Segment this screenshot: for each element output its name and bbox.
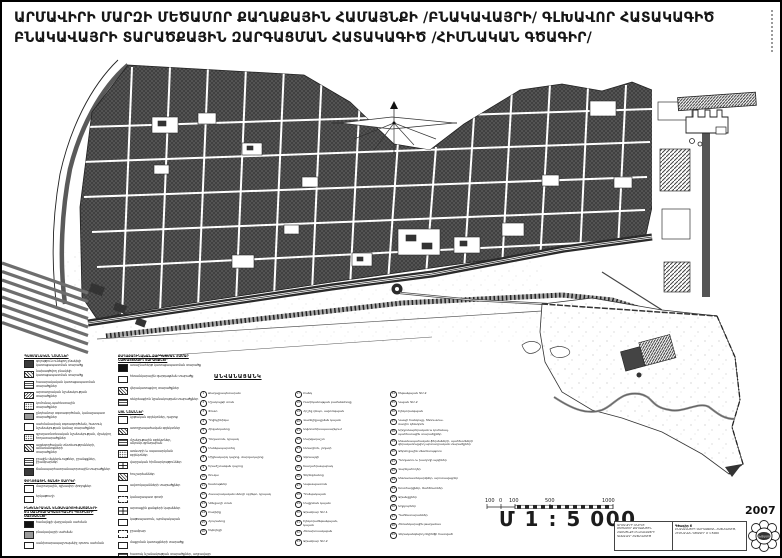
scale-label: 0 (499, 498, 502, 504)
legend-item-label: մշակութային օբյեկտներ, ակումբ-գրադարան (130, 439, 171, 447)
index-item-number: 7 (200, 446, 207, 453)
legend-item-label: հուշարձաններ (130, 473, 155, 477)
stamp-text: ՄԵԾԱՄՈՐ (757, 534, 771, 538)
sheet-title: ԱՐՄԱՎԻՐԻ ՄԱՐԶԻ ՄԵԾԱՄՈՐ ՔԱՂԱՔԱՅԻՆ ՀԱՄԱՅՆՔ… (14, 8, 759, 49)
legend-symbol (118, 496, 128, 504)
index-item-label: Բանկ (303, 392, 312, 396)
legend-symbol (118, 473, 128, 481)
index-item-number: 41 (390, 459, 397, 466)
index-item-label: Ջրամբար ԳՄ-2 (303, 540, 327, 544)
index-item-number: 42 (390, 468, 397, 475)
index-item-number: 44 (390, 486, 397, 493)
index-item-label: Վարելահողեր (398, 468, 420, 472)
index-item: 12Հասարակական սննդի օբյեկտ, կրպակ (200, 492, 293, 499)
legend-symbol (118, 439, 128, 447)
legend-item-label: սանիտարապաշտպանիչ գոտու սահման (36, 542, 104, 546)
index-item: 49Վերականգնվող ռելիեֆի հատված (390, 532, 483, 539)
index-item: 1Քաղաքապետարան (200, 391, 293, 398)
legend-symbol (24, 444, 34, 452)
plan-sheet: ԱՐՄԱՎԻՐԻ ՄԱՐԶԻ ՄԵԾԱՄՈՐ ՔԱՂԱՔԱՅԻՆ ՀԱՄԱՅՆՔ… (0, 0, 782, 558)
legend-item-label: կանաչապատ գոտի (130, 496, 163, 500)
index-item-label: Գերեզմանոց (303, 474, 323, 478)
index-item: 27Կաթսայատուն (295, 483, 388, 490)
index-item: 40Ջերմոցային տնտեսություն (390, 449, 483, 456)
legend-item-label: ավտոկայանների տարածքներ (130, 484, 180, 488)
index-item-number: 2 (200, 400, 207, 407)
index-item-label: Ջերմոցային տնտեսություն (398, 450, 441, 454)
index-item: 17Բանկ (295, 391, 388, 398)
index-item: 23Ստադիոն, լողափ (295, 446, 388, 453)
index-item-label: Եկեղեցի (208, 529, 222, 533)
legend-item-label: գոյություն ունեցող բնակելի կառուցապատման… (36, 360, 83, 368)
legend-section-header: ՔԱՂԱՔԱՇԻՆԱԿԱՆ ԶԱՐԳԱՑՄԱՆ ՀԱՄԱՐ ՆԱԽԱՏԵՍՎՈՂ… (118, 354, 211, 363)
index-item: 10Շուկա (200, 474, 293, 481)
legend-item-label: առևտրի և սպասարկման օբյեկտներ (130, 450, 173, 458)
well-point (637, 373, 642, 378)
legend-symbol (118, 542, 128, 550)
index-item-number: 19 (295, 409, 302, 416)
scale-label: 500 (545, 498, 555, 504)
legend-symbol (118, 485, 128, 493)
legend-item: բնակավայրի սահման (24, 531, 114, 539)
legend: ՊԱՅՄԱՆԱԿԱՆ ՆՇԱՆՆԵՐգոյություն ունեցող բնա… (24, 351, 474, 551)
legend-item: արտաքին ցանցերի կայաններ (118, 507, 211, 515)
index-item-label: Վառելիքալցման կայան (303, 419, 340, 423)
legend-section-header: ՊԱՅՄԱՆԱԿԱՆ ՆՇԱՆՆԵՐ (24, 354, 114, 358)
legend-item: կոմունալ-պահեստային տարածքներ (24, 402, 114, 410)
legend-symbol (24, 381, 34, 389)
index-item: 34Ենթակայան ԳՄ-2 (390, 391, 483, 398)
legend-item: կաթսայատուն, պոմպակայան (118, 518, 211, 526)
index-item-number: 40 (390, 449, 397, 456)
index-item-number: 11 (200, 483, 207, 490)
index-item-label: Մշակույթի տուն (208, 401, 234, 405)
legend-symbol (24, 423, 34, 431)
legend-item-label: նախագծվող բնակելի կառուցապատման տարածք (36, 370, 83, 378)
index-item: 15Հյուրանոց (200, 520, 293, 527)
index-item: 11Խանութներ (200, 483, 293, 490)
index-item-label: Ջրամբար ԳՄ-1 (303, 511, 327, 515)
index-item: 38Արդյունաբերական և կոմունալ- պահեստային… (390, 429, 483, 437)
index-item: 41Պտղատու և խաղողի այգիներ (390, 459, 483, 466)
index-item: 18Ոստիկանության բաժանմունք (295, 400, 388, 407)
legend-item: կրթական օբյեկտներ, դպրոց (118, 416, 211, 424)
index-item: 35Կայան ԳՄ-2 (390, 400, 483, 407)
legend-item: արտադրական նշանակության տարածքներ (24, 391, 114, 399)
legend-item: առողջապահական օբյեկտներ (118, 427, 211, 435)
title-block-organization: ԱՐՄԱՎԻՐԻ ՄԱՐԶԻՄԵԾԱՄՈՐ ՔԱՂԱՔԱՅԻՆՀԱՄԱՅՆՔԻ … (615, 522, 673, 550)
legend-symbol (118, 416, 128, 424)
index-column-1: 1Քաղաքապետարան2Մշակույթի տուն3Փոստ4Պոլիկ… (200, 391, 293, 538)
index-item-label: Էլեկտրաենթակայան, կայան (303, 520, 338, 527)
legend-item: հեռանկարային զարգացման տարածք (118, 375, 211, 383)
index-item-number: 13 (200, 501, 207, 508)
index-item: 39Անասնապահական ֆերմաների, պահեստների վե… (390, 439, 483, 447)
index-item-number: 35 (390, 400, 397, 407)
index-item-label: Պահեստարաններ (398, 514, 427, 518)
index-header: ԱՆՎԱՆԱՑԱՆԿ (214, 374, 262, 380)
legend-symbol (118, 428, 128, 436)
legend-symbol (24, 458, 34, 466)
index-item-number: 49 (390, 532, 397, 539)
index-item: 33Ջրամբար ԳՄ-2 (295, 539, 388, 546)
index-item-number: 43 (390, 477, 397, 484)
index-item-number: 30 (295, 510, 302, 517)
legend-item-label: ռեկրեացիոն նշանակության տարածքներ (130, 398, 198, 402)
legend-symbol (24, 496, 34, 504)
index-item: 31Էլեկտրաենթակայան, կայան (295, 520, 388, 528)
index-item-label: Ենթակայան ԳՄ-2 (398, 392, 426, 396)
legend-item-label: ընդհանուր օգտագործման, կանաչապատ տարածքն… (36, 412, 105, 420)
index-item-label: Մանկապարտեզ (208, 447, 235, 451)
legend-item-label: երկաթուղի (36, 495, 54, 499)
index-item-label: Հիվանդանոց (208, 428, 229, 432)
index-item-label: Կենցաղի տուն (208, 502, 232, 506)
legend-item-label: սահմանափակ օգտագործման, հատուկ նշանակութ… (36, 423, 102, 431)
index-item: 29Մաքրման կայան (295, 501, 388, 508)
index-item-number: 48 (390, 523, 397, 530)
index-item: 47Պահեստարաններ (390, 514, 483, 521)
index-item: 48Հեռանկարային թաղամաս (390, 523, 483, 530)
legend-item-label: արտադրական նշանակության տարածքներ (36, 391, 87, 399)
index-item: 25Խաղահրապարակ (295, 465, 388, 472)
index-item: 7Մանկապարտեզ (200, 446, 293, 453)
legend-item-label: բնակավայրի սահման (36, 531, 73, 535)
index-item: 37Կապի հանգույց, հեռուստա- ռադիո կենտրոն (390, 419, 483, 427)
legend-symbol (118, 399, 128, 407)
index-item-label: Բաղնիք (208, 511, 221, 515)
index-column-2: 17Բանկ18Ոստիկանության բաժանմունք19Հրշեջ … (295, 391, 388, 548)
index-item-label: Պտղատու և խաղողի այգիներ (398, 459, 446, 463)
legend-symbol (24, 360, 34, 368)
index-item-number: 31 (295, 520, 302, 527)
legend-item-label: կոմունալ-պահեստային տարածքներ (36, 402, 75, 410)
index-item-number: 29 (295, 501, 302, 508)
legend-item-label: մայրուղային, գլխավոր փողոցներ (36, 485, 91, 489)
index-item: 9Երաժշտական դպրոց (200, 465, 293, 472)
legend-symbol (24, 402, 34, 410)
index-item-label: Զբոսայգի (303, 456, 319, 460)
legend-item: ավտոկայանների տարածքներ (118, 484, 211, 492)
index-item-label: Երաժշտական դպրոց (208, 465, 243, 469)
legend-item: մշակութային օբյեկտներ, ակումբ-գրադարան (118, 439, 211, 447)
index-item-label: Շուկա (208, 474, 218, 478)
index-item: 42Վարելահողեր (390, 468, 483, 475)
index-item-label: Արդյունաբերական և կոմունալ- պահեստային տ… (398, 429, 448, 436)
legend-item: նախագծվող բնակելի կառուցապատման տարածք (24, 370, 114, 378)
scale-label: 100 (485, 498, 495, 504)
legend-item-label: կրթական օբյեկտներ, դպրոց (130, 416, 178, 420)
southeast-territory (522, 298, 743, 477)
index-item-number: 46 (390, 504, 397, 511)
index-item-label: Էլեկտրակայան (398, 410, 423, 414)
legend-item: այգեգործական տնտեսությունների, ամառանոցն… (24, 444, 114, 455)
legend-symbol (118, 530, 128, 538)
index-item-number: 16 (200, 529, 207, 536)
index-item-label: Ոստիկանության բաժանմունք (303, 401, 351, 405)
index-item: 2Մշակույթի տուն (200, 400, 293, 407)
legend-item-label: վերակառուցվող տարածքներ (130, 387, 179, 391)
index-item-label: Հրշեջ դեպո, ավտոկայան (303, 410, 344, 414)
index-item-number: 4 (200, 419, 207, 426)
legend-section-header: ԻՆԺԵՆԵՐԱԿԱՆ ԵՆԹԱԿԱՌՈՒՑՎԱԾՔՆԵՐԻ ԵՎ ՍԱՆԻՏԱ… (24, 506, 114, 519)
index-item-label: Ստադիոն, լողափ (303, 447, 331, 451)
index-item-number: 20 (295, 419, 302, 426)
index-item-number: 32 (295, 530, 302, 537)
legend-item: համայնքի վարչական սահման (24, 521, 114, 529)
legend-item: առևտրի և սպասարկման օբյեկտներ (118, 450, 211, 458)
index-column-3: 34Ենթակայան ԳՄ-235Կայան ԳՄ-236Էլեկտրակայ… (390, 391, 483, 541)
legend-symbol (24, 371, 34, 379)
legend-item: մայրուղային, գլխավոր փողոցներ (24, 485, 114, 493)
index-item: 43Անտառատնկարկներ, արոտավայրեր (390, 477, 483, 484)
index-item-label: Աղբյուրներ (398, 505, 416, 509)
index-item-number: 25 (295, 465, 302, 472)
legend-item-label: համայնքի վարչական սահման (36, 521, 87, 525)
legend-symbol (118, 507, 128, 515)
legend-item: սահմանափակ օգտագործման, հատուկ նշանակութ… (24, 423, 114, 431)
legend-item-label: այգեգործական տնտեսությունների, ամառանոցն… (36, 444, 114, 455)
index-item-number: 14 (200, 510, 207, 517)
index-item: 5Հիվանդանոց (200, 428, 293, 435)
legend-item: ճանապարհատրանսպորտային տարածքներ (24, 468, 114, 476)
legend-item-label: արտաքին ցանցերի կայաններ (130, 507, 180, 511)
index-item-label: Անասնապահական ֆերմաների, պահեստների վերա… (398, 440, 473, 447)
index-item: 24Զբոսայգի (295, 455, 388, 462)
legend-symbol (24, 392, 34, 400)
title-block: ԱՐՄԱՎԻՐԻ ՄԱՐԶԻՄԵԾԱՄՈՐ ՔԱՂԱՔԱՅԻՆՀԱՄԱՅՆՔԻ … (614, 521, 747, 551)
legend-item: ջրային մակերևույթներ, ջրանցքներ, ջրամբար… (24, 458, 114, 466)
index-item-label: Մարզադաշտ (303, 438, 324, 442)
index-item-label: Հասարակական սննդի օբյեկտ, կրպակ (208, 493, 271, 497)
index-item-number: 1 (200, 391, 207, 398)
index-item-number: 34 (390, 391, 397, 398)
legend-item: ջրամբար (118, 530, 211, 538)
index-item-label: Հեռանկարային թաղամաս (398, 523, 441, 527)
legend-item-label: հեռանկարային զարգացման տարածք (130, 375, 193, 379)
index-item-label: Կապի հանգույց, հեռուստա- ռադիո կենտրոն (398, 419, 443, 426)
legend-symbol (24, 413, 34, 421)
index-item-number: 28 (295, 492, 302, 499)
index-item-number: 22 (295, 437, 302, 444)
index-item-label: Հեռախոսակայան (303, 530, 332, 534)
index-item-number: 17 (295, 391, 302, 398)
index-item-number: 9 (200, 465, 207, 472)
index-item-label: Ջրանցքներ (398, 496, 417, 500)
index-item: 4Պոլիկլինիկա (200, 419, 293, 426)
index-item-label: Փոստ (208, 410, 217, 414)
margin-tick-marks (771, 10, 773, 52)
index-item-number: 15 (200, 520, 207, 527)
legend-item: գյուղատնտեսական նշանակության, մշակվող հո… (24, 433, 114, 441)
index-item: 44Խոտհարքներ, ճահճուտներ (390, 486, 483, 493)
index-item-number: 27 (295, 483, 302, 490)
index-item-label: Խոտհարքներ, ճահճուտներ (398, 487, 442, 491)
index-item: 13Կենցաղի տուն (200, 501, 293, 508)
index-item: 14Բաղնիք (200, 510, 293, 517)
legend-item-label: գյուղատնտեսական նշանակության, մշակվող հո… (36, 433, 111, 441)
drawing-name: ԲՆԱԿԱՎԱՅՐԻ ԶԱՐԳԱՑՄԱՆ ՀԱՏԱԿԱԳԻԾ,ՀԻՄՆԱԿԱՆ … (675, 528, 744, 536)
legend-item-label: ջրամբար (130, 530, 146, 534)
index-item-number: 39 (390, 439, 397, 446)
index-item-number: 12 (200, 492, 207, 499)
index-item-label: Միջնակարգ դպրոց, մարզադպրոց (208, 456, 263, 460)
index-item-label: Պոլիկլինիկա (208, 419, 228, 423)
index-item-label: Պոմպակայան (303, 493, 326, 497)
index-item-number: 38 (390, 429, 397, 436)
index-item-label: Վերականգնվող ռելիեֆի հատված (398, 533, 452, 537)
index-item: 45Ջրանցքներ (390, 495, 483, 502)
index-item-number: 36 (390, 409, 397, 416)
index-item-label: Մաքրման կայան (303, 502, 330, 506)
legend-item: հուշարձաններ (118, 473, 211, 481)
index-item: 8Միջնակարգ դպրոց, մարզադպրոց (200, 455, 293, 462)
legend-symbol (24, 468, 34, 476)
index-item: 19Հրշեջ դեպո, ավտոկայան (295, 409, 388, 416)
index-item: 28Պոմպակայան (295, 492, 388, 499)
legend-symbol (24, 542, 34, 550)
index-item: 30Ջրամբար ԳՄ-1 (295, 510, 388, 517)
legend-symbol (24, 531, 34, 539)
index-item-label: Դեղատուն, կրպակ (208, 438, 238, 442)
legend-symbol (118, 376, 128, 384)
index-item-number: 3 (200, 409, 207, 416)
legend-section-header: ՓՈՂՈՑԱՅԻՆ ՑԱՆՑԻ ՏԱՐՐԵՐ (24, 479, 114, 483)
legend-item-label: հատուկ նշանակության տարածքներ, աղբավայր (130, 553, 211, 557)
legend-item: գոյություն ունեցող բնակելի կառուցապատման… (24, 360, 114, 368)
legend-item: մաքրման կառույցների տարածք (118, 541, 211, 549)
index-item-label: Հյուրանոց (208, 520, 225, 524)
index-item-label: Քաղաքապետարան (208, 392, 240, 396)
legend-symbol (24, 485, 34, 493)
index-item-label: Խանութներ (208, 483, 227, 487)
legend-item: սանիտարապաշտպանիչ գոտու սահման (24, 542, 114, 550)
index-item-number: 8 (200, 455, 207, 462)
legend-item-label: մաքրման կառույցների տարածք (130, 541, 184, 545)
legend-item: հասարակական կառուցապատման տարածքներ (24, 381, 114, 389)
title-block-drawing: Գծագիր 6 ԲՆԱԿԱՎԱՅՐԻ ԶԱՐԳԱՑՄԱՆ ՀԱՏԱԿԱԳԻԾ,… (673, 522, 746, 550)
index-item-number: 5 (200, 428, 207, 435)
index-item: 22Մարզադաշտ (295, 437, 388, 444)
legend-item: վերակառուցվող տարածքներ (118, 387, 211, 395)
index-item-number: 45 (390, 495, 397, 502)
title-block-line: ՀԻՄՆԱԿԱՆ ԳԾԱԳԻՐ Մ 1:5000 (675, 532, 744, 536)
index-item-number: 6 (200, 437, 207, 444)
legend-section-header: ԱՅԼ ՆՇԱՆՆԵՐ (118, 410, 211, 414)
legend-item-label: առողջապահական օբյեկտներ (130, 427, 180, 431)
index-item-label: Անտառատնկարկներ, արոտավայրեր (398, 477, 458, 481)
legend-item: առաջնահերթ կառուցապատման տարածք (118, 364, 211, 372)
index-item-number: 21 (295, 428, 302, 435)
legend-item-label: հասարակական կառուցապատման տարածքներ (36, 381, 95, 389)
legend-column-2: ՔԱՂԱՔԱՇԻՆԱԿԱՆ ԶԱՐԳԱՑՄԱՆ ՀԱՄԱՐ ՆԱԽԱՏԵՍՎՈՂ… (118, 351, 211, 558)
year-label: 2007 (745, 504, 776, 517)
index-item: 32Հեռախոսակայան (295, 530, 388, 537)
legend-symbol (24, 521, 34, 529)
legend-symbol (118, 519, 128, 527)
legend-item: երկաթուղի (24, 495, 114, 503)
index-item-number: 18 (295, 400, 302, 407)
title-block-line: ԳԼԽԱՎՈՐ ՀԱՏԱԿԱԳԻԾ (617, 535, 670, 539)
legend-item-label: ջրային մակերևույթներ, ջրանցքներ, ջրամբար… (36, 458, 96, 466)
index-item-number: 33 (295, 539, 302, 546)
index-item-label: Կաթսայատուն (303, 483, 327, 487)
legend-symbol (24, 434, 34, 442)
index-item: 26Գերեզմանոց (295, 474, 388, 481)
index-item: 6Դեղատուն, կրպակ (200, 437, 293, 444)
legend-item: ընդհանուր օգտագործման, կանաչապատ տարածքն… (24, 412, 114, 420)
index-item-number: 26 (295, 474, 302, 481)
index-item: 3Փոստ (200, 409, 293, 416)
sheet-title-line2: ԲՆԱԿԱՎԱՅՐԻ ՏԱՐԱԾՔԱՅԻՆ ԶԱՐԳԱՑՄԱՆ ՀԱՏԱԿԱԳԻ… (14, 28, 759, 48)
legend-symbol (118, 387, 128, 395)
scale-label: 100 (509, 498, 519, 504)
index-item-label: Ավտոտեխսպասարկում (303, 428, 341, 432)
legend-item-label: վարչական հիմնարկություններ (130, 461, 181, 465)
legend-item: հատուկ նշանակության տարածքներ, աղբավայր (118, 553, 211, 558)
legend-item-label: առաջնահերթ կառուցապատման տարածք (130, 364, 201, 368)
legend-item-label: կաթսայատուն, պոմպակայան (130, 518, 180, 522)
legend-item: կանաչապատ գոտի (118, 496, 211, 504)
index-item: 16Եկեղեցի (200, 529, 293, 536)
index-item-number: 37 (390, 419, 397, 426)
index-item-label: Կայան ԳՄ-2 (398, 401, 417, 405)
index-item: 36Էլեկտրակայան (390, 409, 483, 416)
legend-symbol (118, 364, 128, 372)
index-item-number: 10 (200, 474, 207, 481)
legend-column-1: ՊԱՅՄԱՆԱԿԱՆ ՆՇԱՆՆԵՐգոյություն ունեցող բնա… (24, 351, 114, 552)
legend-symbol (118, 553, 128, 558)
scale-label: 1000 (602, 498, 615, 504)
legend-item: ռեկրեացիոն նշանակության տարածքներ (118, 398, 211, 406)
index-item-number: 24 (295, 455, 302, 462)
legend-item: վարչական հիմնարկություններ (118, 461, 211, 469)
legend-symbol (118, 450, 128, 458)
official-stamp: ՄԵԾԱՄՈՐ (747, 519, 781, 553)
index-item-label: Խաղահրապարակ (303, 465, 333, 469)
index-item: 21Ավտոտեխսպասարկում (295, 428, 388, 435)
legend-item-label: ճանապարհատրանսպորտային տարածքներ (36, 468, 110, 472)
index-item-number: 47 (390, 514, 397, 521)
legend-symbol (118, 462, 128, 470)
index-item: 20Վառելիքալցման կայան (295, 419, 388, 426)
index-item: 46Աղբյուրներ (390, 504, 483, 511)
index-item-number: 23 (295, 446, 302, 453)
sheet-title-line1: ԱՐՄԱՎԻՐԻ ՄԱՐԶԻ ՄԵԾԱՄՈՐ ՔԱՂԱՔԱՅԻՆ ՀԱՄԱՅՆՔ… (14, 8, 759, 28)
